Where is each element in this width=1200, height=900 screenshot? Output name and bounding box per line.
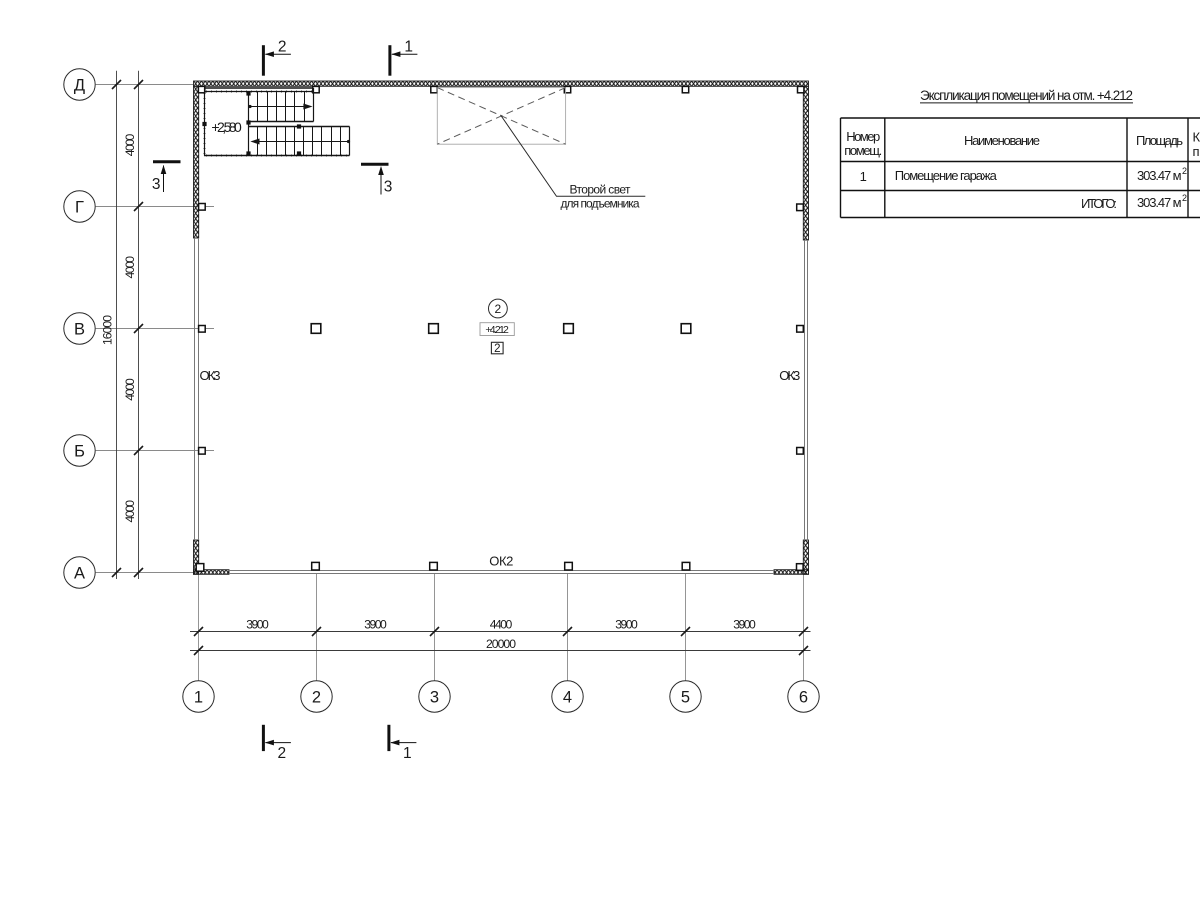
svg-text:3900: 3900 — [733, 618, 756, 632]
svg-text:2: 2 — [494, 343, 500, 355]
svg-text:Второй свет: Второй свет — [570, 183, 632, 197]
svg-text:Номер: Номер — [846, 129, 880, 144]
svg-text:4000: 4000 — [123, 256, 137, 279]
svg-text:Наименование: Наименование — [964, 133, 1040, 148]
svg-text:2: 2 — [495, 302, 502, 316]
svg-text:303.47 м: 303.47 м — [1137, 195, 1182, 210]
svg-text:ОК2: ОК2 — [489, 553, 513, 568]
svg-text:1: 1 — [194, 688, 203, 706]
svg-text:1: 1 — [860, 169, 867, 184]
svg-text:3900: 3900 — [246, 618, 269, 632]
svg-text:4000: 4000 — [123, 134, 137, 157]
svg-text:4400: 4400 — [490, 618, 513, 632]
svg-text:3900: 3900 — [615, 618, 638, 632]
svg-text:для подъемника: для подъемника — [561, 197, 640, 211]
svg-text:2: 2 — [312, 688, 321, 706]
svg-text:303.47 м: 303.47 м — [1137, 168, 1182, 183]
svg-text:ОК3: ОК3 — [200, 368, 221, 383]
svg-text:4: 4 — [563, 688, 572, 706]
svg-text:ОК3: ОК3 — [779, 368, 800, 383]
svg-text:5: 5 — [681, 688, 690, 706]
svg-text:16000: 16000 — [101, 315, 115, 345]
svg-text:2: 2 — [1182, 193, 1187, 203]
svg-text:А: А — [74, 564, 85, 582]
svg-text:3: 3 — [430, 688, 439, 706]
svg-text:2: 2 — [1182, 166, 1187, 176]
svg-text:2: 2 — [277, 745, 286, 762]
svg-text:ИТОГО:: ИТОГО: — [1081, 196, 1117, 211]
svg-text:+2,580: +2,580 — [211, 119, 242, 135]
svg-text:Площадь: Площадь — [1136, 133, 1183, 148]
svg-text:6: 6 — [799, 688, 808, 706]
svg-text:помещ.: помещ. — [844, 143, 882, 158]
svg-text:+4.212: +4.212 — [485, 324, 509, 336]
svg-text:1: 1 — [403, 745, 412, 762]
svg-text:Д: Д — [74, 76, 85, 94]
svg-text:В: В — [74, 320, 85, 338]
svg-text:20000: 20000 — [486, 637, 516, 651]
svg-text:1: 1 — [404, 38, 413, 55]
svg-text:Б: Б — [74, 442, 85, 460]
svg-text:2: 2 — [278, 38, 287, 55]
svg-text:Экспликация помещений на отм.: Экспликация помещений на отм. +4.212 — [920, 88, 1133, 103]
svg-text:3: 3 — [384, 178, 393, 195]
svg-text:Помещение гаража: Помещение гаража — [895, 168, 998, 183]
svg-text:4000: 4000 — [123, 500, 137, 523]
svg-text:4000: 4000 — [123, 378, 137, 401]
svg-text:3900: 3900 — [364, 618, 387, 632]
svg-text:3: 3 — [152, 176, 161, 193]
svg-text:К: К — [1193, 130, 1200, 145]
svg-text:Г: Г — [75, 198, 84, 216]
svg-text:п: п — [1193, 144, 1200, 159]
